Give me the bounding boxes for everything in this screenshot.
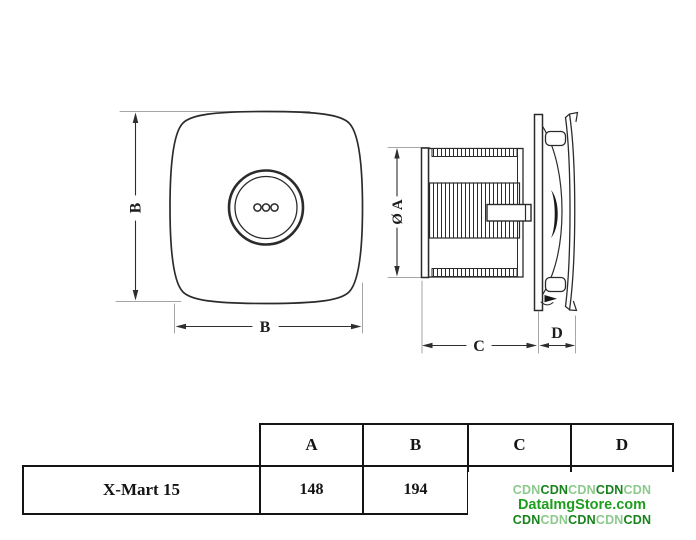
watermark-cdn-chunk: CDN: [596, 483, 624, 497]
watermark-cdn-chunk: CDN: [568, 513, 596, 527]
watermark-cdn-chunk: CDN: [540, 513, 568, 527]
arrowhead-right: [527, 343, 538, 348]
depth-c-dim-label: C: [473, 338, 485, 355]
hub-dot-right: [271, 204, 278, 211]
hub-dot-left: [254, 204, 261, 211]
watermark-domain: DataImgStore.com: [518, 498, 646, 514]
front-width-dim-label: B: [260, 319, 271, 336]
mounting-plate: [535, 115, 543, 311]
watermark-cdn-chunk: CDN: [513, 513, 541, 527]
cover-bulge: [543, 127, 562, 294]
depth-d-dim-label: D: [551, 325, 563, 342]
arrowhead-left: [540, 343, 550, 348]
duct-flange-plate: [422, 148, 429, 278]
cover-shadow: [551, 190, 558, 238]
clip-top: [546, 132, 566, 146]
terminal-box: [487, 205, 531, 222]
arrowhead-up: [394, 148, 399, 159]
diameter-dim-label: Ø A: [390, 199, 406, 225]
duct-rib-band-bottom: [432, 269, 517, 277]
clip-pointer-arrow: [545, 295, 558, 302]
watermark-cdn-line-top: CDNCDNCDNCDNCDN: [513, 484, 651, 498]
table-header-d: D: [570, 423, 674, 467]
watermark-cdn-line-bottom: CDNCDNCDNCDNCDN: [513, 514, 651, 528]
arrowhead-up: [133, 113, 139, 124]
arrowhead-right: [566, 343, 576, 348]
table-header-c: C: [467, 423, 572, 467]
hub-dot-center: [262, 204, 269, 211]
side-view: Ø A C D: [388, 113, 578, 356]
front-panel-top-cap: [566, 113, 578, 122]
watermark-cdn-chunk: CDN: [624, 513, 652, 527]
watermark-cdn-chunk: CDN: [596, 513, 624, 527]
watermark-cdn-chunk: CDN: [624, 483, 652, 497]
front-view: B B: [116, 112, 363, 337]
arrowhead-left: [176, 324, 187, 330]
table-model-cell: X-Mart 15: [22, 465, 261, 515]
front-height-dim-label: B: [128, 202, 145, 213]
arrowhead-down: [133, 290, 139, 301]
watermark: CDNCDNCDNCDNCDN DataImgStore.com CDNCDNC…: [468, 472, 696, 540]
table-value-b: 194: [362, 465, 469, 515]
table-header-a: A: [259, 423, 364, 467]
arrowhead-right: [351, 324, 362, 330]
front-panel-inner: [566, 118, 571, 307]
watermark-cdn-chunk: CDN: [513, 483, 541, 497]
fan-dimension-sheet: B B: [0, 0, 696, 540]
technical-drawing: B B: [0, 0, 696, 420]
watermark-cdn-chunk: CDN: [540, 483, 568, 497]
table-value-a: 148: [259, 465, 364, 515]
table-header-b: B: [362, 423, 469, 467]
clip-bottom: [546, 278, 566, 292]
watermark-cdn-chunk: CDN: [568, 483, 596, 497]
arrowhead-down: [394, 266, 399, 277]
arrowhead-left: [422, 343, 433, 348]
duct-rib-band-top: [432, 149, 517, 157]
